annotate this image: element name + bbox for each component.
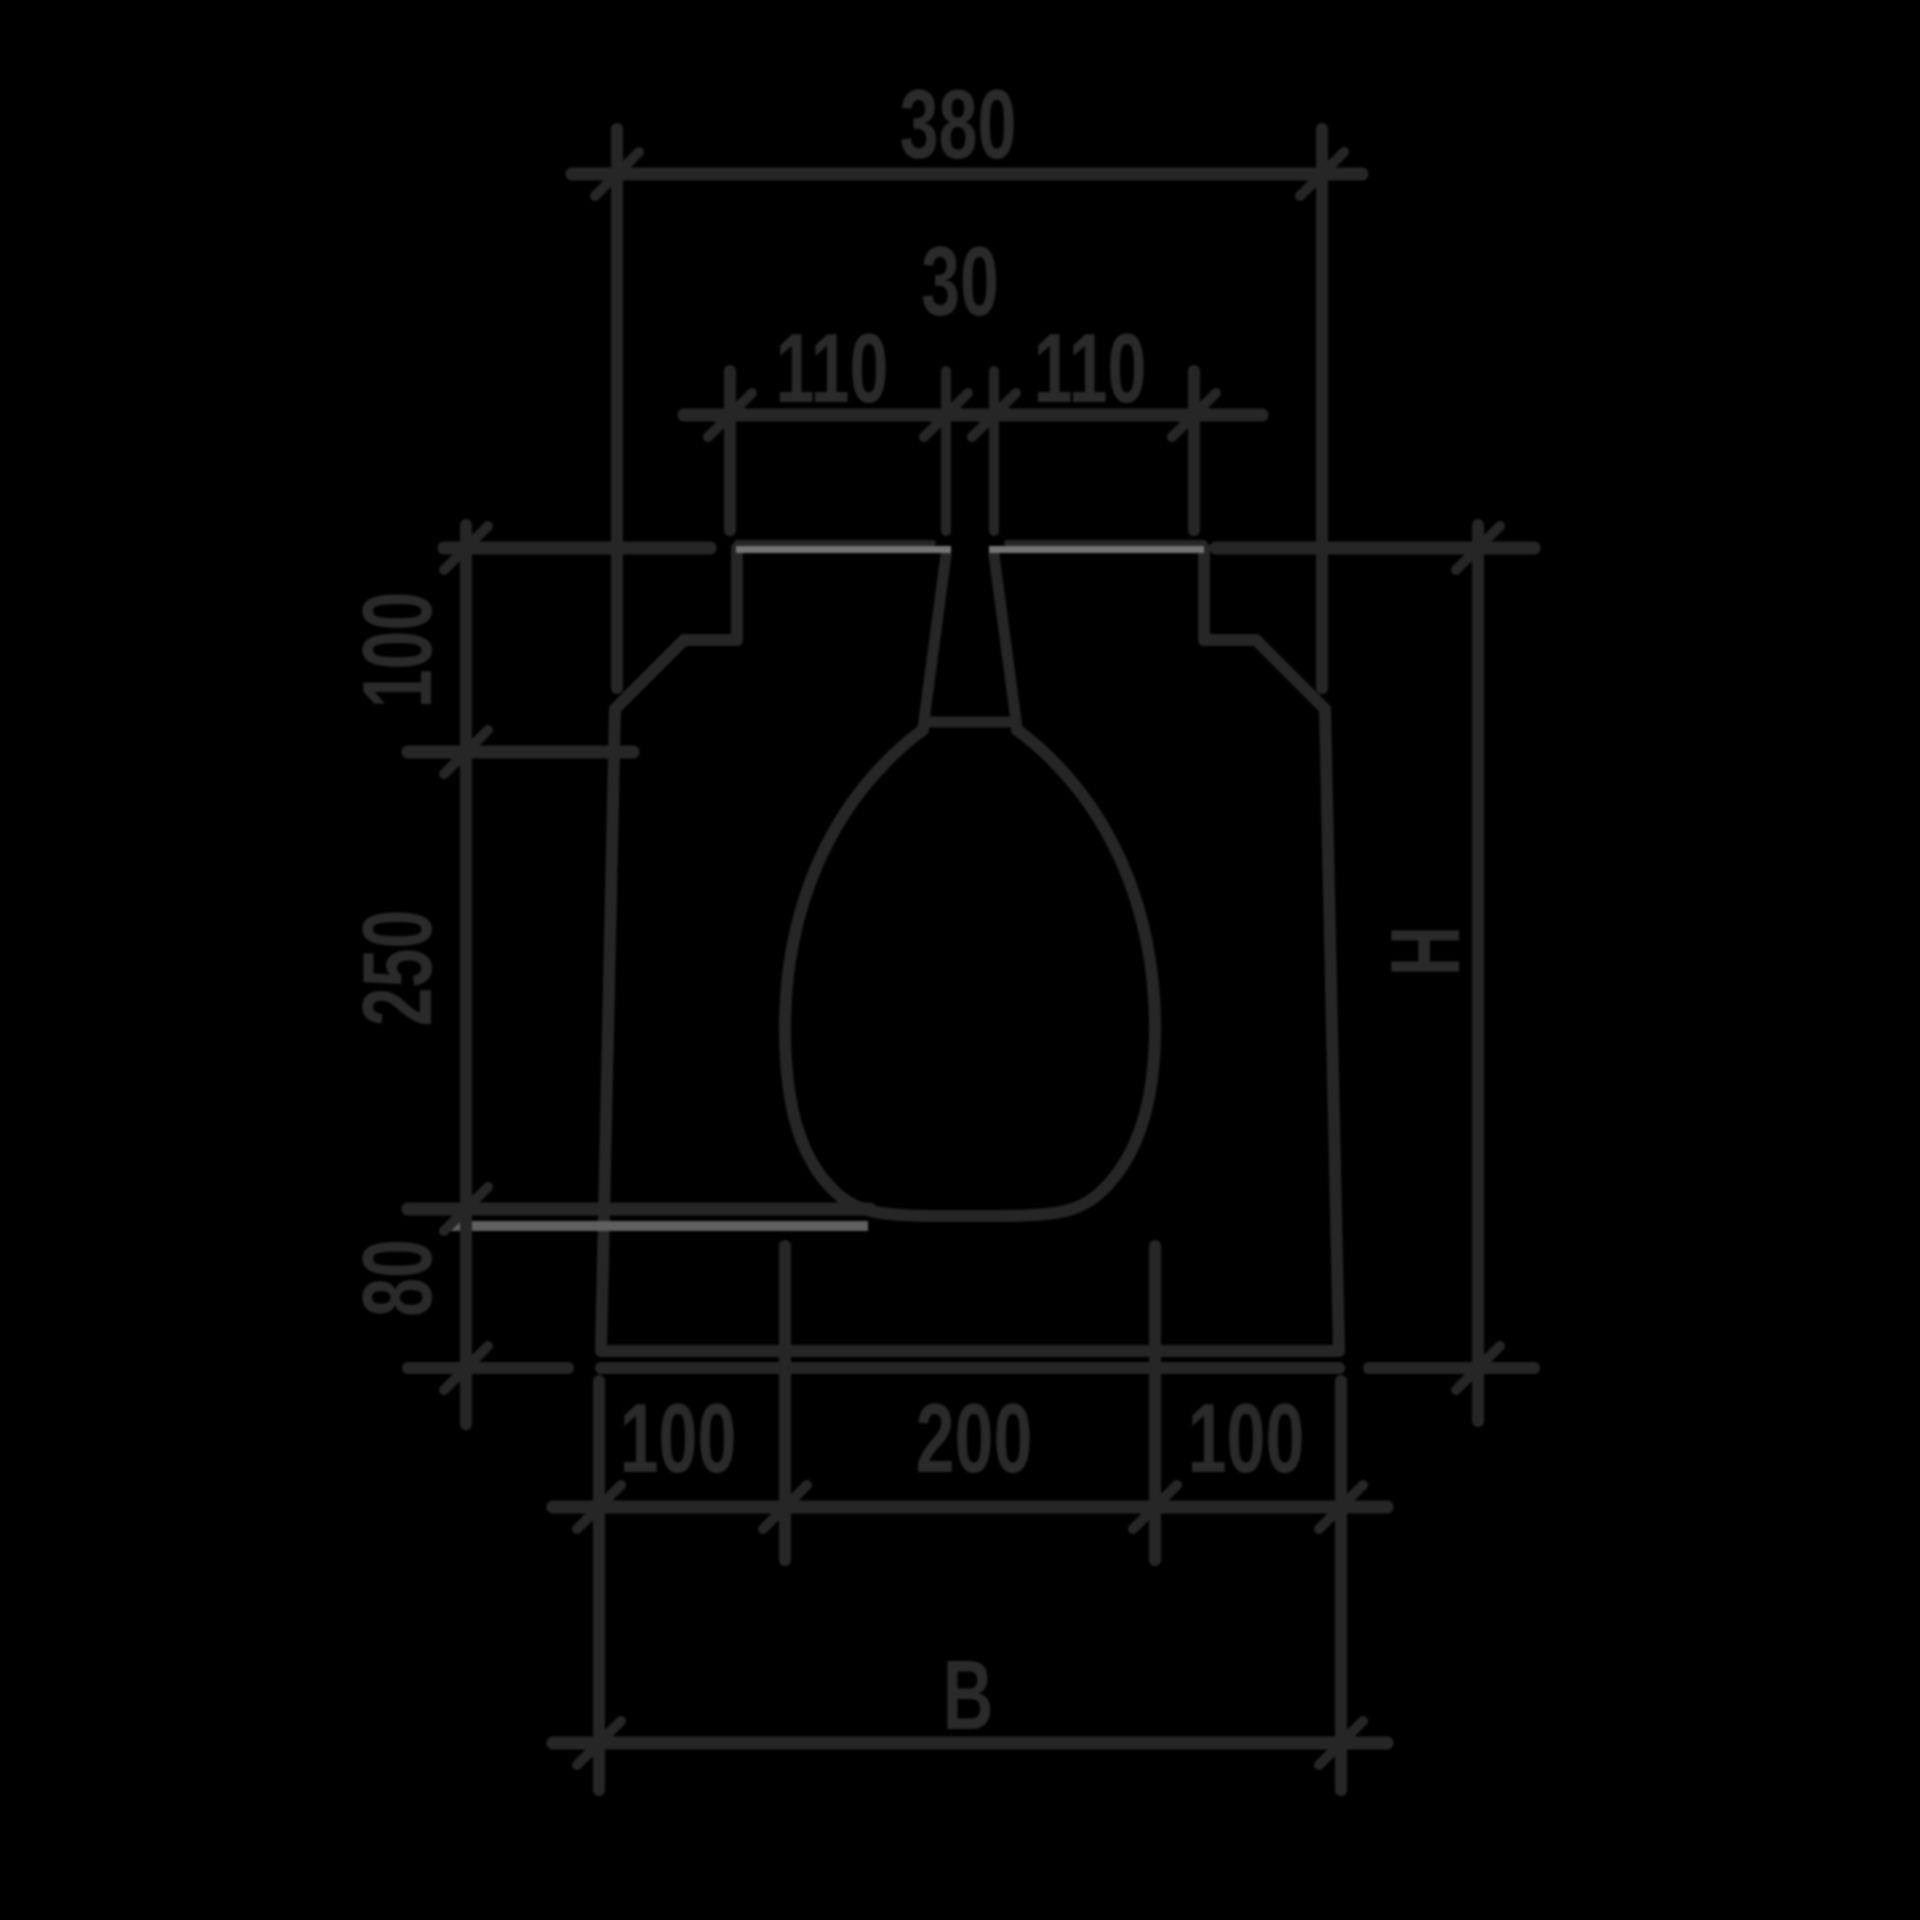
svg-text:200: 200 [916,1385,1033,1494]
svg-text:110: 110 [776,315,889,424]
svg-text:100: 100 [1188,1385,1305,1494]
svg-text:B: B [943,1642,994,1751]
svg-text:100: 100 [344,592,453,709]
svg-text:110: 110 [1034,315,1147,424]
svg-text:30: 30 [921,228,999,337]
svg-text:80: 80 [344,1239,453,1317]
svg-text:250: 250 [344,910,453,1027]
svg-text:380: 380 [900,71,1017,180]
svg-text:H: H [1372,926,1481,977]
svg-text:100: 100 [620,1385,737,1494]
